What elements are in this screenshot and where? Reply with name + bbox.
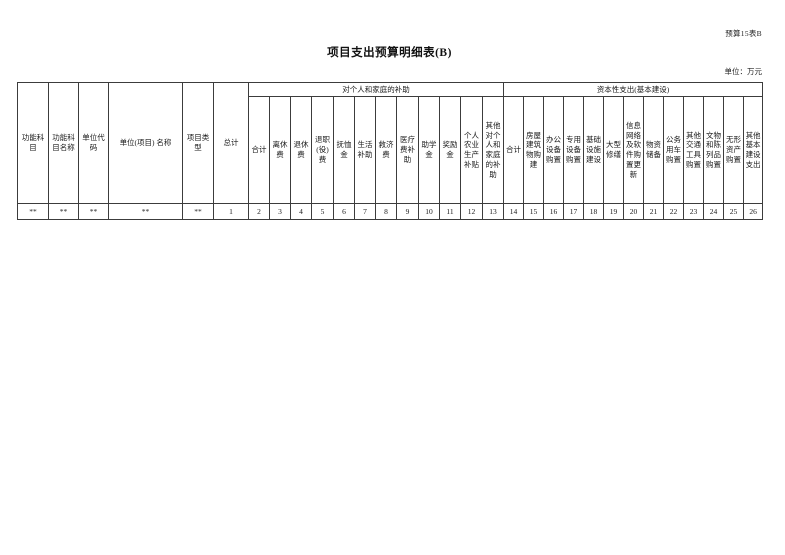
column-header: 无形资产购置 <box>724 97 744 204</box>
column-header: 专用设备购置 <box>564 97 584 204</box>
index-cell: 8 <box>376 204 397 220</box>
column-header: 信息网络及软件购置更新 <box>624 97 644 204</box>
index-cell: 12 <box>461 204 483 220</box>
header-group-row: 功能科目 功能科目名称 单位代码 单位(项目) 名称 项目类型 总计 对个人和家… <box>18 83 763 97</box>
column-header: 医疗费补助 <box>397 97 419 204</box>
index-cell: 6 <box>334 204 355 220</box>
index-cell: 9 <box>397 204 419 220</box>
index-cell: 4 <box>291 204 312 220</box>
column-header-unit-project-name: 单位(项目) 名称 <box>109 83 183 204</box>
group-header-capital-expenditure: 资本性支出(基本建设) <box>504 83 763 97</box>
column-header: 房屋建筑物购建 <box>524 97 544 204</box>
column-header: 个人农业生产补贴 <box>461 97 483 204</box>
index-cell: 22 <box>664 204 684 220</box>
index-cell: 2 <box>249 204 270 220</box>
column-header: 其他对个人和家庭的补助 <box>483 97 504 204</box>
column-header-function-subject: 功能科目 <box>18 83 49 204</box>
index-cell: 15 <box>524 204 544 220</box>
index-cell: 7 <box>355 204 376 220</box>
page-title: 项目支出预算明细表(B) <box>17 44 762 60</box>
column-header-grand-total: 总计 <box>214 83 249 204</box>
index-cell: 3 <box>270 204 291 220</box>
column-index-row: ** ** ** ** ** 1 2 3 4 5 6 7 8 9 10 11 1… <box>18 204 763 220</box>
index-cell: 14 <box>504 204 524 220</box>
column-header: 生活补助 <box>355 97 376 204</box>
budget-document-page: 预算15表B 项目支出预算明细表(B) 单位：万元 功能科目 功能科目名称 单位… <box>0 0 785 555</box>
index-cell: 18 <box>584 204 604 220</box>
index-cell: ** <box>183 204 214 220</box>
index-cell: 21 <box>644 204 664 220</box>
index-cell: 1 <box>214 204 249 220</box>
index-cell: 20 <box>624 204 644 220</box>
column-header: 抚恤金 <box>334 97 355 204</box>
index-cell: ** <box>79 204 109 220</box>
unit-note: 单位：万元 <box>725 66 763 77</box>
doc-sheet-label: 预算15表B <box>725 28 762 39</box>
column-header: 合计 <box>504 97 524 204</box>
index-cell: 10 <box>419 204 440 220</box>
column-header: 合计 <box>249 97 270 204</box>
index-cell: 24 <box>704 204 724 220</box>
column-header-project-type: 项目类型 <box>183 83 214 204</box>
column-header: 公务用车购置 <box>664 97 684 204</box>
column-header: 文物和陈列品购置 <box>704 97 724 204</box>
column-header: 离休费 <box>270 97 291 204</box>
index-cell: ** <box>18 204 49 220</box>
index-cell: 23 <box>684 204 704 220</box>
column-header-unit-code: 单位代码 <box>79 83 109 204</box>
column-header: 退职(役)费 <box>312 97 334 204</box>
column-header: 救济费 <box>376 97 397 204</box>
column-header: 助学金 <box>419 97 440 204</box>
column-header: 其他基本建设支出 <box>744 97 763 204</box>
column-header-function-subject-name: 功能科目名称 <box>49 83 79 204</box>
index-cell: 25 <box>724 204 744 220</box>
column-header: 退休费 <box>291 97 312 204</box>
column-header: 大型修缮 <box>604 97 624 204</box>
column-header: 办公设备购置 <box>544 97 564 204</box>
index-cell: ** <box>109 204 183 220</box>
column-header: 其他交通工具购置 <box>684 97 704 204</box>
index-cell: 26 <box>744 204 763 220</box>
index-cell: 11 <box>440 204 461 220</box>
index-cell: 17 <box>564 204 584 220</box>
group-header-individual-family-subsidy: 对个人和家庭的补助 <box>249 83 504 97</box>
column-header: 基础设施建设 <box>584 97 604 204</box>
column-header: 物资储备 <box>644 97 664 204</box>
column-header: 奖励金 <box>440 97 461 204</box>
index-cell: 5 <box>312 204 334 220</box>
index-cell: 19 <box>604 204 624 220</box>
index-cell: 13 <box>483 204 504 220</box>
index-cell: 16 <box>544 204 564 220</box>
index-cell: ** <box>49 204 79 220</box>
budget-detail-table: 功能科目 功能科目名称 单位代码 单位(项目) 名称 项目类型 总计 对个人和家… <box>17 82 763 220</box>
